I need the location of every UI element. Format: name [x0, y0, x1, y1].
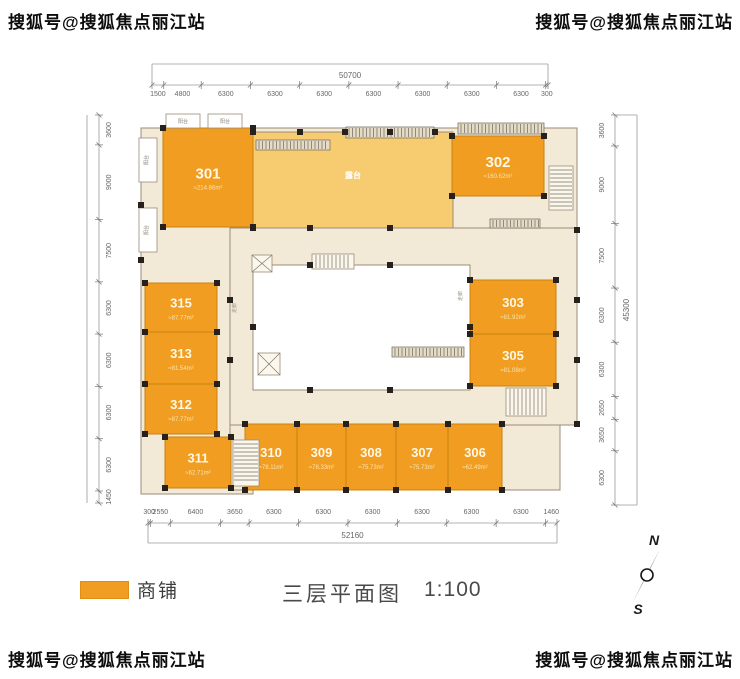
room-area: ≈81.92m²: [500, 315, 525, 321]
dim-value: 6300: [365, 509, 381, 516]
room-area: ≈87.77m²: [168, 417, 193, 423]
room-number: 302: [485, 154, 510, 171]
room-302: 302≈160.62m²: [452, 136, 544, 196]
legend: 商铺: [80, 576, 179, 603]
room-number: 312: [170, 397, 192, 412]
stair-icon: [506, 388, 546, 416]
drawing-title: 三层平面图 1:100: [282, 578, 482, 608]
room-number: 315: [170, 296, 192, 311]
room-area: ≈78.33m²: [309, 465, 334, 471]
room-number: 307: [411, 445, 433, 460]
atrium-void: [253, 265, 470, 390]
dim-value: 6300: [599, 307, 606, 323]
legend-shop-label: 商铺: [137, 576, 179, 603]
dim-value: 7500: [599, 248, 606, 264]
room-312: 312≈87.77m²: [145, 384, 217, 434]
dim-value: 6300: [106, 352, 113, 368]
dim-value: 300: [541, 91, 553, 98]
room-number: 308: [360, 445, 382, 460]
room-303: 303≈81.92m²: [470, 280, 556, 334]
room-area: ≈81.54m²: [168, 366, 193, 372]
dim-value: 3600: [106, 122, 113, 138]
dim-total: 50700: [339, 71, 362, 80]
room-number: 303: [502, 295, 524, 310]
terrace-label: 露台: [345, 170, 361, 180]
room-309: 309≈78.33m²: [297, 424, 346, 490]
dim-value: 6300: [599, 362, 606, 378]
corridor-label: 走廊: [457, 291, 464, 301]
dim-value: 6300: [106, 405, 113, 421]
room-area: ≈62.49m²: [462, 465, 487, 471]
room-area: ≈75.73m²: [358, 465, 383, 471]
room-305: 305≈81.08m²: [470, 334, 556, 386]
room-number: 305: [502, 348, 524, 363]
dim-value: 6300: [218, 91, 234, 98]
compass-north-label: N: [649, 532, 660, 548]
drawing-title-text: 三层平面图: [282, 578, 402, 608]
stair-icon: [549, 166, 573, 210]
dim-value: 9000: [106, 174, 113, 190]
dim-value: 6300: [513, 509, 529, 516]
room-315: 315≈87.77m²: [145, 283, 217, 332]
balcony-label: 阳台: [143, 155, 150, 165]
compass-hub: [641, 569, 653, 581]
dim-total: 52160: [341, 531, 364, 540]
room-area: ≈75.73m²: [409, 465, 434, 471]
dim-value: 6400: [188, 509, 204, 516]
compass-south-label: S: [633, 601, 643, 617]
room-301: 301≈214.86m²: [163, 128, 253, 227]
room-313: 313≈81.54m²: [145, 332, 217, 384]
dim-value: 7500: [106, 243, 113, 259]
dim-value: 6300: [106, 300, 113, 316]
dim-value: 1460: [543, 509, 559, 516]
compass: NS: [633, 532, 660, 617]
stair-icon: [312, 254, 354, 269]
room-area: ≈62.71m²: [185, 471, 210, 477]
room-number: 306: [464, 445, 486, 460]
dim-value: 6300: [266, 509, 282, 516]
room-number: 313: [170, 346, 192, 361]
dim-value: 3650: [599, 427, 606, 443]
dim-value: 3600: [599, 123, 606, 139]
dim-chain-top: 1500480063006300630063006300630063003005…: [150, 64, 553, 98]
dim-value: 6300: [366, 91, 382, 98]
room-area: ≈214.86m²: [194, 186, 223, 192]
dim-value: 1500: [150, 91, 166, 98]
dim-value: 6300: [316, 91, 332, 98]
dim-chain-right: 3600900075006300630026503650630045300: [599, 113, 637, 508]
dim-value: 6300: [464, 509, 480, 516]
elevator-icon: [258, 353, 280, 375]
dim-value: 6300: [315, 509, 331, 516]
dim-value: 4800: [175, 91, 191, 98]
room-308: 308≈75.73m²: [346, 424, 396, 490]
floor-plan-page: 搜狐号@搜狐焦点丽江站 搜狐号@搜狐焦点丽江站 搜狐号@搜狐焦点丽江站 搜狐号@…: [0, 0, 740, 679]
legend-shop-swatch: [80, 581, 129, 599]
dim-value: 6300: [415, 91, 431, 98]
dim-value: 3650: [227, 509, 243, 516]
drawing-scale: 1:100: [424, 578, 482, 608]
room-number: 301: [195, 166, 220, 183]
dim-value: 2650: [599, 400, 606, 416]
room-area: ≈87.77m²: [168, 316, 193, 322]
dim-value: 6300: [267, 91, 283, 98]
dim-value: 2550: [153, 509, 169, 516]
room-number: 311: [188, 451, 209, 466]
room-number: 310: [260, 445, 282, 460]
room-307: 307≈75.73m²: [396, 424, 448, 490]
dim-value: 9000: [599, 177, 606, 193]
room-area: ≈160.62m²: [484, 174, 513, 180]
room-306: 306≈62.49m²: [448, 424, 502, 490]
dim-chain-left: 36009000750063006300630063001450: [87, 113, 113, 506]
dim-value: 6300: [513, 91, 529, 98]
dim-value: 6300: [464, 91, 480, 98]
room-area: ≈78.11m²: [259, 465, 284, 471]
balcony-label: 阳台: [143, 225, 150, 235]
elevator-icon: [252, 255, 272, 272]
stair-icon: [233, 440, 259, 486]
dim-value: 6300: [414, 509, 430, 516]
balcony-label: 阳台: [220, 118, 230, 125]
dim-chain-bottom: 3002550640036506300630063006300630063001…: [143, 509, 559, 543]
balcony-label: 阳台: [178, 118, 188, 125]
dim-value: 1450: [106, 489, 113, 505]
room-area: ≈81.08m²: [500, 368, 525, 374]
room-311: 311≈62.71m²: [165, 437, 231, 488]
dim-value: 6300: [599, 470, 606, 486]
dim-value: 6300: [106, 457, 113, 473]
corridor-label: 走廊: [231, 303, 238, 313]
dim-total: 45300: [622, 298, 631, 321]
room-number: 309: [311, 445, 333, 460]
